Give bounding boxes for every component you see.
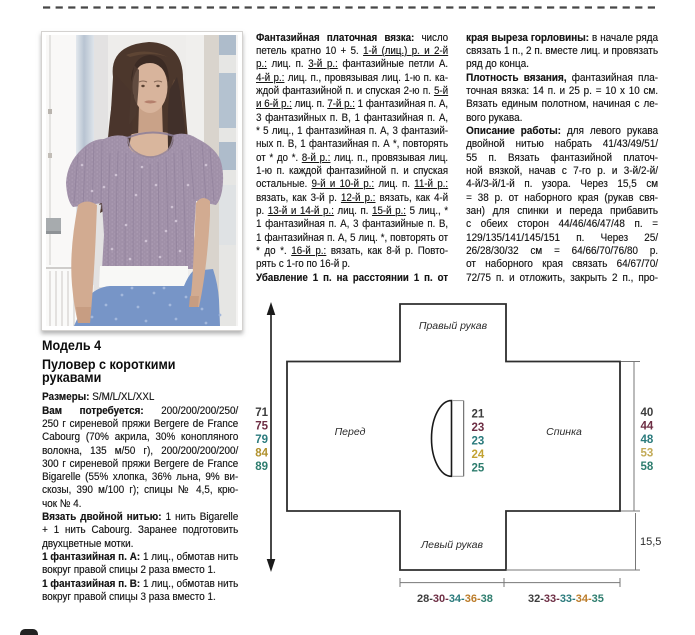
svg-text:21: 21 <box>472 409 485 421</box>
svg-text:23: 23 <box>472 436 485 448</box>
svg-text:44: 44 <box>641 421 654 433</box>
svg-text:75: 75 <box>255 421 268 433</box>
svg-text:32-33-33-34-35: 32-33-33-34-35 <box>528 593 604 605</box>
svg-text:89: 89 <box>255 461 268 473</box>
svg-text:Спинка: Спинка <box>546 426 582 438</box>
svg-text:Левый рукав: Левый рукав <box>420 539 484 551</box>
svg-text:48: 48 <box>641 434 654 446</box>
svg-text:15,5: 15,5 <box>640 536 661 548</box>
svg-text:58: 58 <box>641 461 654 473</box>
svg-text:25: 25 <box>472 463 485 475</box>
svg-text:53: 53 <box>641 448 654 460</box>
svg-text:23: 23 <box>472 422 485 434</box>
svg-text:84: 84 <box>255 448 268 460</box>
svg-text:28-30-34-36-38: 28-30-34-36-38 <box>417 593 493 605</box>
svg-text:71: 71 <box>255 407 268 419</box>
svg-text:24: 24 <box>472 449 485 461</box>
svg-text:40: 40 <box>641 407 654 419</box>
svg-text:Перед: Перед <box>335 426 366 438</box>
svg-text:79: 79 <box>255 434 268 446</box>
svg-text:Правый рукав: Правый рукав <box>419 320 488 332</box>
